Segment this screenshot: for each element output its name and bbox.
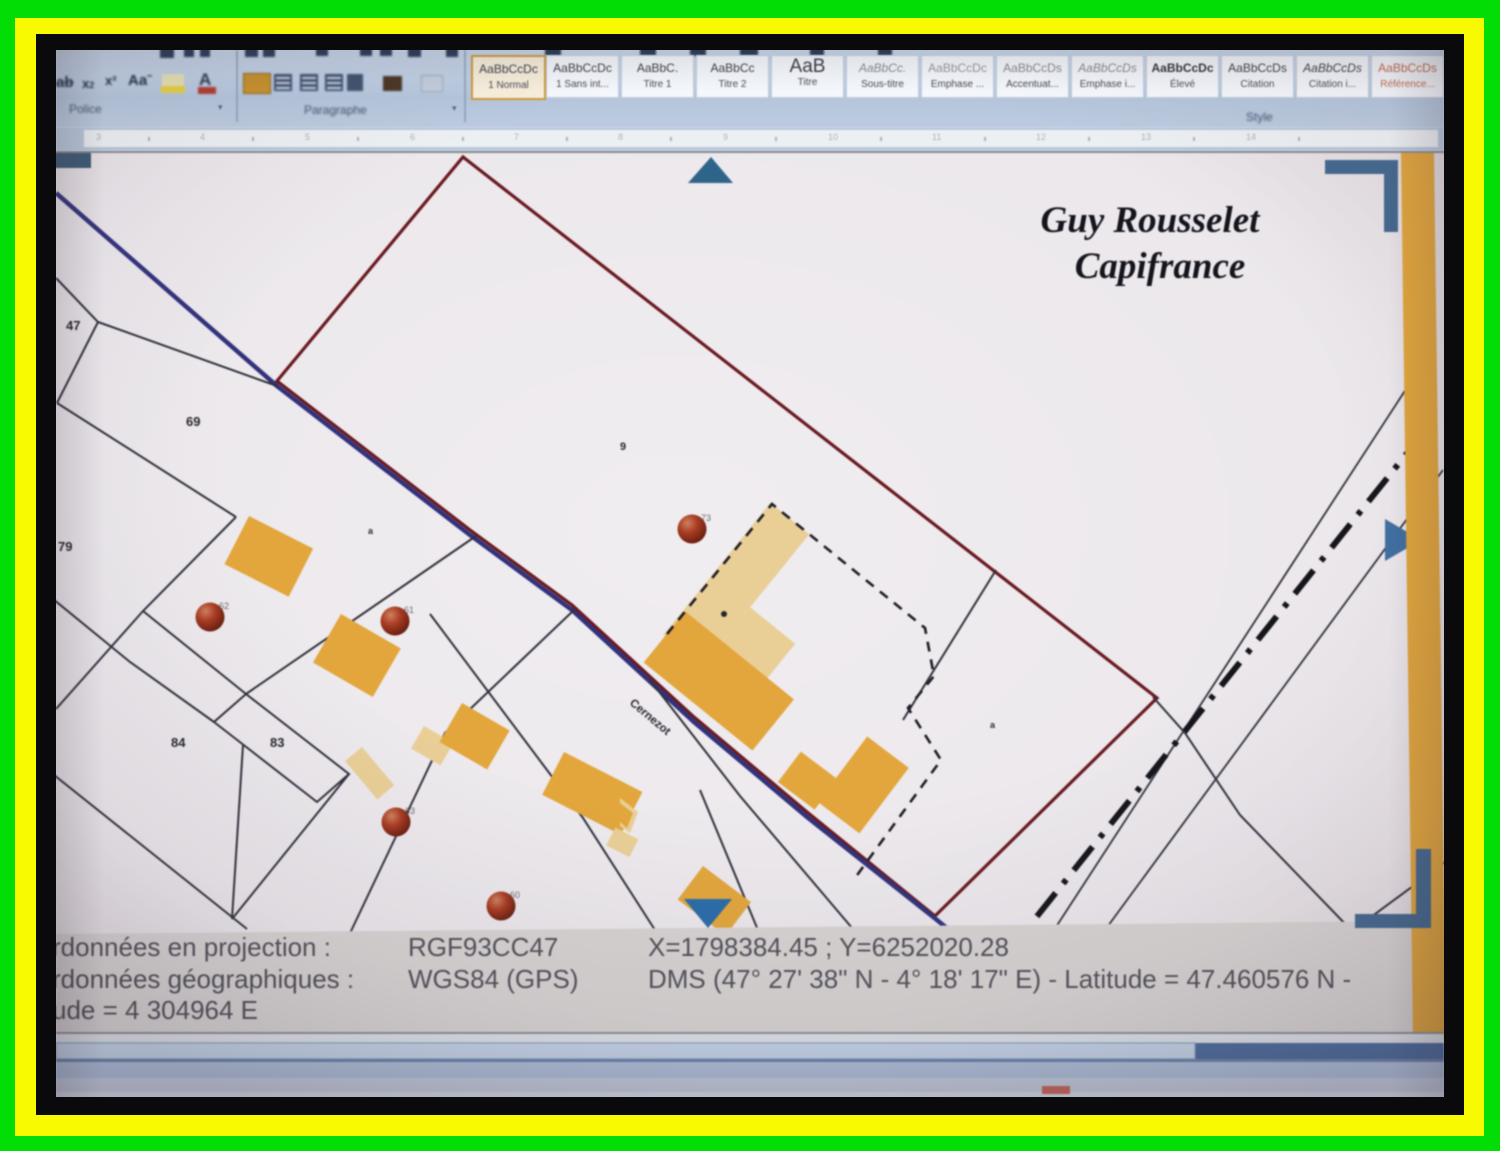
svg-text:63: 63	[405, 806, 415, 816]
svg-text:60: 60	[510, 890, 520, 900]
svg-text:RGF93CC47: RGF93CC47	[408, 932, 558, 962]
svg-text:84: 84	[171, 735, 186, 750]
svg-text:Guy Rousselet: Guy Rousselet	[1041, 200, 1262, 241]
svg-text:79: 79	[58, 539, 72, 554]
svg-text:62: 62	[219, 601, 229, 611]
svg-text:69: 69	[186, 414, 200, 429]
svg-text:61: 61	[404, 605, 414, 615]
svg-text:DMS (47° 27' 38" N - 4° 18' 17: DMS (47° 27' 38" N - 4° 18' 17" E) - Lat…	[648, 964, 1351, 994]
svg-text:X=1798384.45 ; Y=6252020.28: X=1798384.45 ; Y=6252020.28	[648, 932, 1009, 962]
svg-text:9: 9	[620, 441, 626, 453]
svg-text:ude = 4 304964 E: ude = 4 304964 E	[56, 995, 258, 1025]
svg-text:83: 83	[270, 735, 284, 750]
svg-text:rdonnées géographiques :: rdonnées géographiques :	[56, 964, 354, 994]
svg-text:73: 73	[701, 513, 711, 523]
svg-text:47: 47	[66, 318, 80, 333]
svg-text:Capifrance: Capifrance	[1075, 246, 1246, 287]
svg-text:WGS84 (GPS): WGS84 (GPS)	[408, 964, 578, 994]
svg-text:rdonnées en projection :: rdonnées en projection :	[56, 932, 331, 962]
